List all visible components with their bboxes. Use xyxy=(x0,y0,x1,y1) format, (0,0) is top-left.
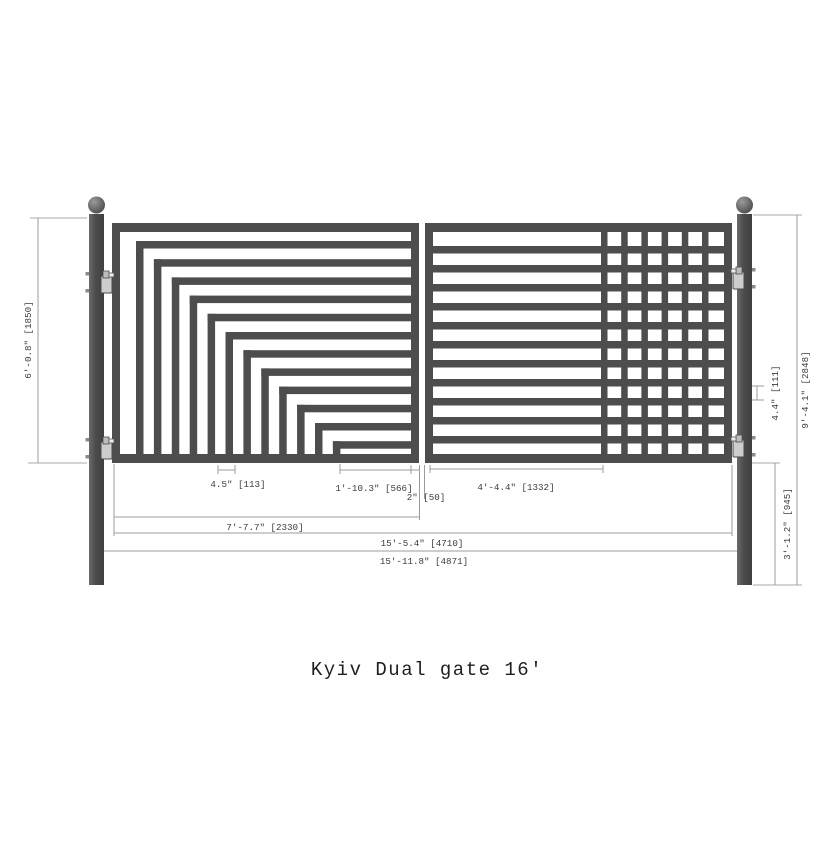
cascade-horizontal-bar xyxy=(315,423,411,431)
post-nub xyxy=(752,285,756,289)
dim-left-panel-opening-label: 1'-10.3" [566] xyxy=(335,483,412,494)
left-post xyxy=(89,214,104,585)
cascade-vertical-bar xyxy=(297,405,305,454)
dim-overall-width-label: 15'-11.8" [4871] xyxy=(380,556,468,567)
left-post-ball-cap xyxy=(88,197,105,214)
dim-bar-spacing-line xyxy=(750,386,764,400)
hinge-icon xyxy=(731,435,744,457)
dim-bar-spacing-label: 4.4" [111] xyxy=(770,365,781,420)
gate-technical-drawing: 6'-0.8" [1850] 4.5" [113] 1'-10.3" [566]… xyxy=(0,0,839,848)
panel-horizontal-bar xyxy=(433,398,724,406)
dim-below-gate-label: 3'-1.2" [945] xyxy=(782,488,793,560)
cascade-vertical-bar xyxy=(243,350,251,454)
cascade-horizontal-bar xyxy=(208,314,411,322)
dim-picket-spacing xyxy=(218,465,235,474)
cascade-vertical-bar xyxy=(261,368,269,454)
panel-horizontal-bar xyxy=(433,246,724,254)
right-post-ball-cap xyxy=(736,197,753,214)
cascade-vertical-bar xyxy=(315,423,323,454)
cascade-horizontal-bar xyxy=(154,259,411,267)
hinge-icon xyxy=(731,267,744,289)
dim-left-panel-opening xyxy=(340,464,411,474)
post-nub xyxy=(752,268,756,272)
dim-picket-spacing-line xyxy=(218,465,235,474)
hinge-icon xyxy=(101,271,114,293)
cascade-vertical-bar xyxy=(226,332,234,454)
cascade-horizontal-bar xyxy=(297,405,411,413)
grid-vertical-bar xyxy=(702,232,709,454)
cascade-vertical-bar xyxy=(208,314,216,454)
dim-gate-height-extensions xyxy=(28,218,87,463)
right-gate-panel xyxy=(425,223,732,463)
panel-horizontal-bar xyxy=(433,303,724,311)
grid-vertical-bar xyxy=(641,232,648,454)
cascade-vertical-bar xyxy=(190,296,198,454)
right-panel-horizontal-bars xyxy=(433,246,724,444)
cascade-horizontal-bar xyxy=(243,350,411,358)
dim-right-panel-section xyxy=(430,465,603,473)
dim-right-panel-section-line xyxy=(430,465,603,473)
dim-below-gate xyxy=(750,463,780,585)
panel-horizontal-bar xyxy=(433,360,724,368)
cascade-horizontal-bar xyxy=(190,296,411,304)
grid-vertical-bar xyxy=(621,232,628,454)
panel-horizontal-bar xyxy=(433,341,724,349)
cascade-vertical-bar xyxy=(172,277,180,454)
left-panel-cascade-bars xyxy=(136,241,411,454)
cascade-vertical-bar xyxy=(136,241,144,454)
post-nub xyxy=(86,455,90,459)
cascade-vertical-bar xyxy=(333,441,341,454)
cascade-horizontal-bar xyxy=(226,332,412,340)
panel-horizontal-bar xyxy=(433,265,724,273)
post-nub xyxy=(86,438,90,442)
drawing-sheet: 6'-0.8" [1850] 4.5" [113] 1'-10.3" [566]… xyxy=(0,0,839,848)
grid-vertical-bar xyxy=(682,232,689,454)
left-gate-panel xyxy=(112,223,419,463)
panel-horizontal-bar xyxy=(433,284,724,292)
dim-gate-height-label: 6'-0.8" [1850] xyxy=(23,301,34,378)
cascade-horizontal-bar xyxy=(333,441,411,449)
cascade-horizontal-bar xyxy=(172,277,411,285)
cascade-vertical-bar xyxy=(279,387,287,454)
grid-vertical-bar xyxy=(601,232,608,454)
cascade-vertical-bar xyxy=(154,259,162,454)
hinge-icon xyxy=(101,437,114,459)
cascade-horizontal-bar xyxy=(279,387,411,395)
dim-picket-spacing-label: 4.5" [113] xyxy=(210,479,265,490)
dim-gates-width-label: 15'-5.4" [4710] xyxy=(381,538,464,549)
cascade-horizontal-bar xyxy=(136,241,411,249)
dim-panel-gap-label: 2" [50] xyxy=(407,492,446,503)
cascade-horizontal-bar xyxy=(261,368,411,376)
grid-vertical-bar xyxy=(662,232,669,454)
dim-left-panel-width-label: 7'-7.7" [2330] xyxy=(226,522,303,533)
panel-horizontal-bar xyxy=(433,436,724,444)
dim-post-height-label: 9'-4.1" [2848] xyxy=(800,351,811,428)
panel-horizontal-bar xyxy=(433,379,724,387)
post-nub xyxy=(752,453,756,457)
gate-posts xyxy=(86,197,756,586)
panel-horizontal-bar xyxy=(433,322,724,330)
dim-right-panel-section-label: 4'-4.4" [1332] xyxy=(477,482,554,493)
post-nub xyxy=(86,289,90,293)
dim-left-panel-opening-line xyxy=(340,464,411,474)
post-nub xyxy=(86,272,90,276)
panel-horizontal-bar xyxy=(433,417,724,425)
dim-gate-height xyxy=(28,218,87,463)
dim-bar-spacing xyxy=(750,386,764,400)
post-nub xyxy=(752,436,756,440)
drawing-title: Kyiv Dual gate 16' xyxy=(311,659,543,681)
